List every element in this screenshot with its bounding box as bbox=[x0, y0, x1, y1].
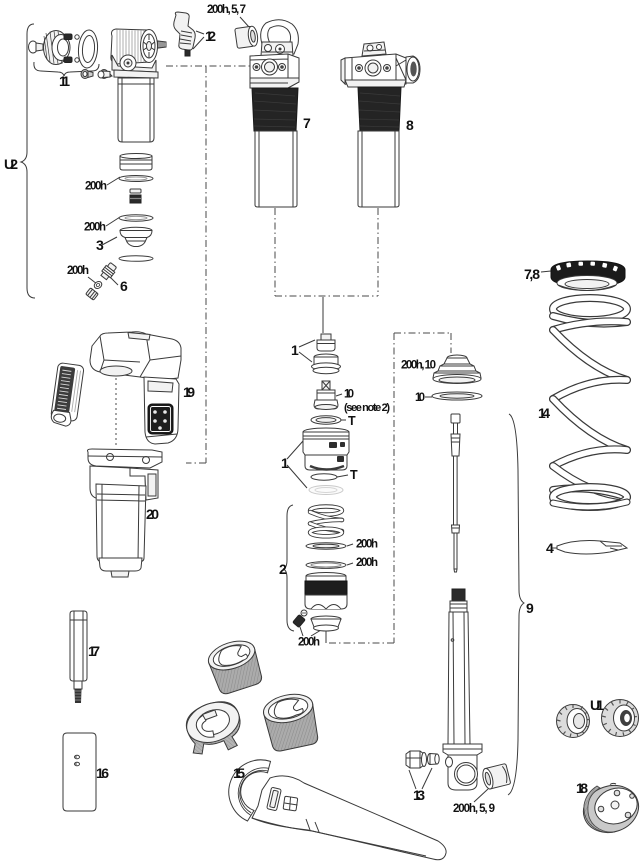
svg-text:20: 20 bbox=[146, 506, 159, 522]
svg-text:18: 18 bbox=[576, 780, 588, 796]
svg-text:6: 6 bbox=[120, 278, 128, 294]
svg-text:1: 1 bbox=[291, 342, 299, 358]
svg-text:10: 10 bbox=[415, 392, 425, 404]
svg-text:1: 1 bbox=[281, 455, 289, 471]
svg-text:11: 11 bbox=[59, 73, 70, 89]
svg-text:200h, 5, 7: 200h, 5, 7 bbox=[207, 4, 246, 16]
svg-text:15: 15 bbox=[233, 765, 245, 781]
svg-text:14: 14 bbox=[538, 405, 550, 421]
svg-text:10: 10 bbox=[344, 389, 354, 401]
svg-text:200h: 200h bbox=[298, 637, 320, 649]
svg-text:U2: U2 bbox=[4, 156, 18, 172]
svg-text:19: 19 bbox=[183, 384, 195, 400]
svg-text:12: 12 bbox=[205, 28, 216, 44]
svg-text:7, 8: 7, 8 bbox=[524, 266, 540, 282]
svg-text:9: 9 bbox=[526, 600, 534, 616]
svg-text:200h: 200h bbox=[85, 181, 107, 193]
svg-text:(see note 2): (see note 2) bbox=[344, 402, 390, 414]
svg-text:U1: U1 bbox=[590, 697, 604, 713]
svg-text:13: 13 bbox=[413, 787, 425, 803]
svg-text:8: 8 bbox=[406, 117, 414, 133]
svg-text:200h: 200h bbox=[67, 265, 89, 277]
svg-text:200h: 200h bbox=[356, 539, 378, 551]
svg-text:17: 17 bbox=[88, 643, 100, 659]
svg-text:200h: 200h bbox=[356, 557, 378, 569]
svg-text:200h: 200h bbox=[84, 222, 106, 234]
svg-text:4: 4 bbox=[546, 540, 554, 556]
svg-text:200h, 5, 9: 200h, 5, 9 bbox=[453, 803, 495, 815]
svg-text:T: T bbox=[348, 414, 356, 428]
svg-text:7: 7 bbox=[303, 115, 311, 131]
svg-text:2: 2 bbox=[279, 561, 287, 577]
svg-text:16: 16 bbox=[96, 765, 109, 781]
svg-text:3: 3 bbox=[96, 237, 104, 253]
svg-text:T: T bbox=[350, 468, 358, 482]
svg-text:200h, 10: 200h, 10 bbox=[401, 360, 436, 372]
